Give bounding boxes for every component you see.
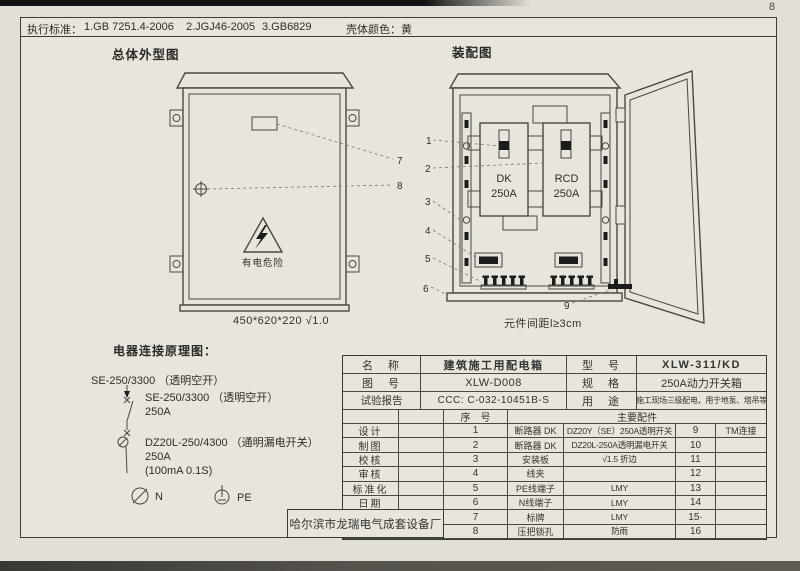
row-no2: 15· (676, 510, 716, 524)
rcd-breaker-param: (100mA 0.1S) (145, 465, 212, 477)
info-row-report: 试验报告 CCC: C-032-10451B-S 用 途 施工现场三级配电，用于… (343, 392, 766, 410)
model-value: XLW-311/KD (637, 356, 766, 374)
standard-3: 3.GB6829 (262, 21, 312, 33)
report-value: CCC: C-032-10451B-S (421, 392, 567, 410)
parts-row: 审核 4 线夹 12 (343, 467, 766, 481)
row-part: PE线端子 (508, 482, 564, 496)
breaker-symbols (118, 385, 133, 473)
row-spec2 (716, 438, 766, 452)
cabinet-body (183, 88, 346, 305)
row-spec: LMY (564, 496, 676, 510)
row-spec2 (716, 510, 766, 524)
row-spec2 (716, 482, 766, 496)
use-value: 施工现场三级配电，用于地泵、塔吊等 (637, 392, 766, 410)
outline-drawing-svg: 有电危险 7 8 (150, 58, 410, 332)
spec-value: 250A动力开关箱 (637, 374, 766, 392)
row-sign (399, 438, 444, 452)
cabinet-roof (177, 73, 353, 88)
page-number: 8 (769, 1, 775, 13)
incoming-label: SE-250/3300 （透明空开） (91, 373, 224, 387)
row-role: 校核 (343, 453, 399, 467)
name-label: 名 称 (343, 356, 421, 374)
cabinet-base (180, 305, 349, 311)
callout-8: 8 (397, 181, 403, 192)
row-no: 1 (444, 424, 508, 438)
assembly-note: 元件间距l≥3cm (504, 315, 582, 331)
row-no2: 14 (676, 496, 716, 510)
row-sign (399, 467, 444, 481)
info-row-name: 名 称 建筑施工用配电箱 型 号 XLW-311/KD (343, 356, 766, 374)
callout-9: 9 (564, 301, 570, 312)
row-spec2 (716, 496, 766, 510)
earth-symbol-icon (215, 485, 229, 504)
neutral-symbol-icon (132, 488, 148, 504)
row-no2: 9 (676, 424, 716, 438)
row-spec2 (716, 525, 766, 539)
row-no2: 11 (676, 453, 716, 467)
row-spec: DZ20L-250A透明漏电开关 (564, 438, 676, 452)
pe-label: PE (237, 492, 252, 504)
door-latch (616, 206, 625, 224)
row-no2: 10 (676, 438, 716, 452)
row-spec: LMY (564, 510, 676, 524)
warning-text: 有电危险 (242, 257, 284, 269)
row-no: 6 (444, 496, 508, 510)
info-row-drawing: 图 号 XLW-D008 规 格 250A动力开关箱 (343, 374, 766, 392)
serial-header: 序 号 (444, 410, 508, 424)
outline-dimensions: 450*620*220 √1.0 (233, 315, 329, 327)
standard-2: 2.JGJ46-2005 (186, 21, 255, 33)
callout-2: 2 (425, 164, 431, 175)
row-spec: LMY (564, 482, 676, 496)
row-no2: 16 (676, 525, 716, 539)
row-spec2 (716, 467, 766, 481)
row-spec2 (716, 453, 766, 467)
row-part: 压把锁孔 (508, 525, 564, 539)
name-value: 建筑施工用配电箱 (421, 356, 567, 374)
row-spec: DZ20Y（SE）250A透明开关 (564, 424, 676, 438)
parts-row: 设计 1 断路器 DK DZ20Y（SE）250A透明开关 9 TM连接 (343, 424, 766, 438)
row-no: 5 (444, 482, 508, 496)
row-sign (399, 453, 444, 467)
assembly-roof (450, 74, 620, 88)
scan-edge-top (0, 0, 530, 6)
standards-label: 执行标准： (27, 21, 82, 37)
row-no: 3 (444, 453, 508, 467)
callout-4: 4 (425, 226, 431, 237)
standard-1: 1.GB 7251.4-2006 (84, 21, 174, 33)
drawing-no-value: XLW-D008 (421, 374, 567, 392)
ph-empty-1 (343, 410, 399, 424)
shell-color: 壳体颜色：黄 (346, 21, 412, 37)
row-part: 断路器 DK (508, 424, 564, 438)
parts-header-row: 序 号 主要配件 (343, 410, 766, 424)
rcd-rating: 250A (554, 188, 580, 200)
parts-row: 制图 2 断路器 DK DZ20L-250A透明漏电开关 10 (343, 438, 766, 452)
row-no2: 12 (676, 467, 716, 481)
parts-row: 标准化 5 PE线端子 LMY 13 (343, 482, 766, 496)
row-part: 标牌 (508, 510, 564, 524)
factory-name: 哈尔滨市龙瑞电气成套设备厂 (287, 509, 444, 538)
row-no: 7 (444, 510, 508, 524)
row-role: 设计 (343, 424, 399, 438)
dk-name: DK (496, 173, 512, 185)
row-no: 4 (444, 467, 508, 481)
assembly-drawing-svg: DK 250A RCD 250A (420, 58, 720, 336)
row-part: 断路器 DK (508, 438, 564, 452)
row-spec (564, 467, 676, 481)
callout-7: 7 (397, 156, 403, 167)
parts-header: 主要配件 (508, 410, 766, 424)
row-no: 2 (444, 438, 508, 452)
row-part: N线端子 (508, 496, 564, 510)
callout-3: 3 (425, 197, 431, 208)
breaker-dk: DK 250A (480, 123, 528, 216)
door-hinge-top (616, 108, 625, 122)
row-role: 制图 (343, 438, 399, 452)
schematic-svg: SE-250/3300 （透明空开） SE-250/3300 （透明空开） 25… (60, 345, 340, 515)
row-part: 安装板 (508, 453, 564, 467)
row-spec2: TM连接 (716, 424, 766, 438)
breaker-rcd: RCD 250A (543, 123, 590, 216)
callout-6: 6 (423, 284, 429, 295)
use-label: 用 途 (567, 392, 637, 410)
scan-edge-bottom (0, 561, 800, 571)
row-no: 8 (444, 525, 508, 539)
row-role: 标准化 (343, 482, 399, 496)
ph-empty-2 (399, 410, 444, 424)
n-label: N (155, 491, 163, 503)
rcd-name: RCD (555, 173, 579, 185)
row-part: 线夹 (508, 467, 564, 481)
main-breaker-label: SE-250/3300 （透明空开） (145, 390, 278, 404)
dk-rating: 250A (491, 188, 517, 200)
row-no2: 13 (676, 482, 716, 496)
drawing-no-label: 图 号 (343, 374, 421, 392)
callout-1: 1 (426, 136, 432, 147)
row-role: 审核 (343, 467, 399, 481)
row-spec: √1.5 折边 (564, 453, 676, 467)
row-spec: 防雨 (564, 525, 676, 539)
parts-row: 校核 3 安装板 √1.5 折边 11 (343, 453, 766, 467)
row-sign (399, 424, 444, 438)
model-label: 型 号 (567, 356, 637, 374)
assembly-base (447, 293, 622, 301)
rcd-breaker-label: DZ20L-250/4300 （通明漏电开关） (145, 435, 319, 449)
spec-label: 规 格 (567, 374, 637, 392)
main-breaker-rating: 250A (145, 406, 171, 418)
rcd-breaker-rating: 250A (145, 451, 171, 463)
open-door (625, 71, 704, 323)
callout-5: 5 (425, 254, 431, 265)
row-sign (399, 482, 444, 496)
report-label: 试验报告 (343, 392, 421, 410)
